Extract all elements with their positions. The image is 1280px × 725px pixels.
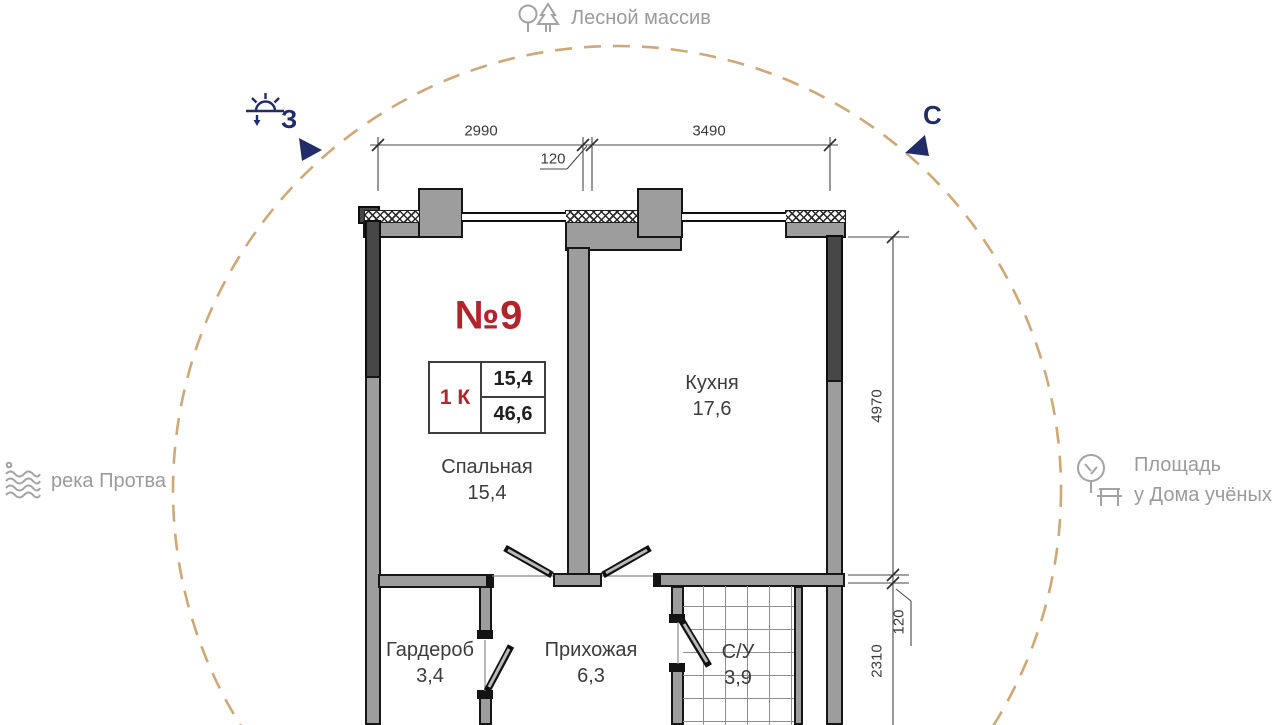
wall-left-dark (365, 220, 381, 380)
wall-left (365, 376, 381, 725)
door-frame-cap (477, 690, 493, 699)
trees-icon (517, 2, 561, 34)
square-landmark: Площадь у Дома учёных (1070, 450, 1272, 510)
wall-bedroom-bottom (378, 574, 492, 588)
wall-pier (637, 188, 683, 238)
square-label: Площадь у Дома учёных (1134, 450, 1272, 510)
wall-pier (418, 188, 463, 238)
door-frame-cap (477, 630, 493, 639)
wall-kitchen-bottom (653, 573, 845, 587)
river-label: река Протва (51, 470, 166, 493)
wall-right-dark (826, 235, 843, 382)
window-hatch (785, 210, 846, 223)
compass-north-label: С (923, 100, 942, 131)
wall-right (826, 380, 843, 725)
forest-label: Лесной массив (571, 7, 711, 30)
window (462, 212, 566, 222)
dim-top-left: 2990 (464, 123, 497, 140)
floorplan-canvas: Лесной массив З С река Протва (0, 0, 1280, 725)
forest-landmark: Лесной массив (517, 2, 711, 34)
wall-bedroom-kitchen (567, 247, 590, 577)
room-label-wardrobe: Гардероб 3,4 (386, 637, 474, 689)
living-area: 15,4 (482, 363, 544, 398)
apartment-info-card: 1 К 15,4 46,6 (428, 361, 546, 434)
wall-stub (553, 573, 602, 587)
room-label-kitchen: Кухня 17,6 (685, 370, 739, 422)
dim-right-mid: 120 (891, 609, 908, 634)
dim-right-bottom: 2310 (869, 644, 886, 677)
park-bench-icon (1070, 451, 1122, 509)
room-count: 1 К (430, 363, 482, 432)
west-arrow-icon (299, 138, 322, 161)
door-frame-cap (653, 573, 661, 587)
total-area: 46,6 (482, 398, 544, 433)
linework-layer (0, 0, 1280, 725)
wall-bath-right (794, 586, 803, 725)
north-arrow-icon (905, 135, 929, 156)
room-label-hallway: Прихожая 6,3 (545, 637, 638, 689)
waves-icon (4, 460, 42, 502)
dim-right-top: 4970 (869, 389, 886, 422)
window (682, 212, 786, 222)
window-hatch (565, 210, 638, 223)
dim-top-mid: 120 (540, 151, 565, 168)
door-frame-cap (486, 574, 494, 588)
room-label-bedroom: Спальная 15,4 (441, 454, 532, 506)
dim-top-right: 3490 (692, 123, 725, 140)
site-circle (173, 46, 1061, 725)
compass-west-label: З (281, 104, 297, 135)
room-label-bathroom: С/У 3,9 (722, 639, 755, 691)
river-landmark: река Протва (4, 460, 166, 502)
apartment-number: №9 (455, 294, 524, 339)
